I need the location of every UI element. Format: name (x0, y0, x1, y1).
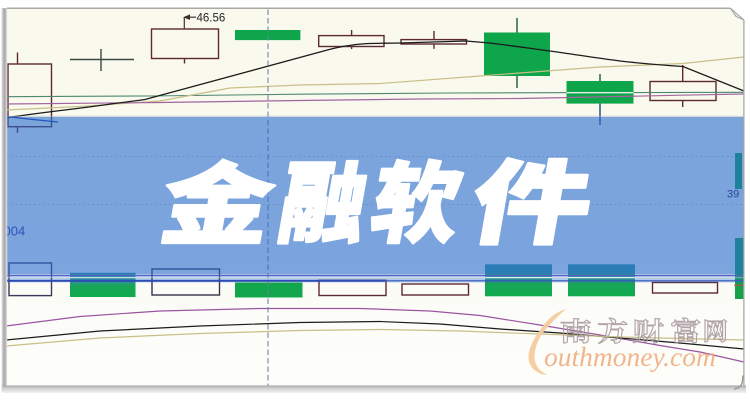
svg-text:39: 39 (727, 189, 739, 201)
svg-text:outhmoney.com: outhmoney.com (544, 341, 716, 372)
svg-text:46.56: 46.56 (197, 13, 226, 25)
